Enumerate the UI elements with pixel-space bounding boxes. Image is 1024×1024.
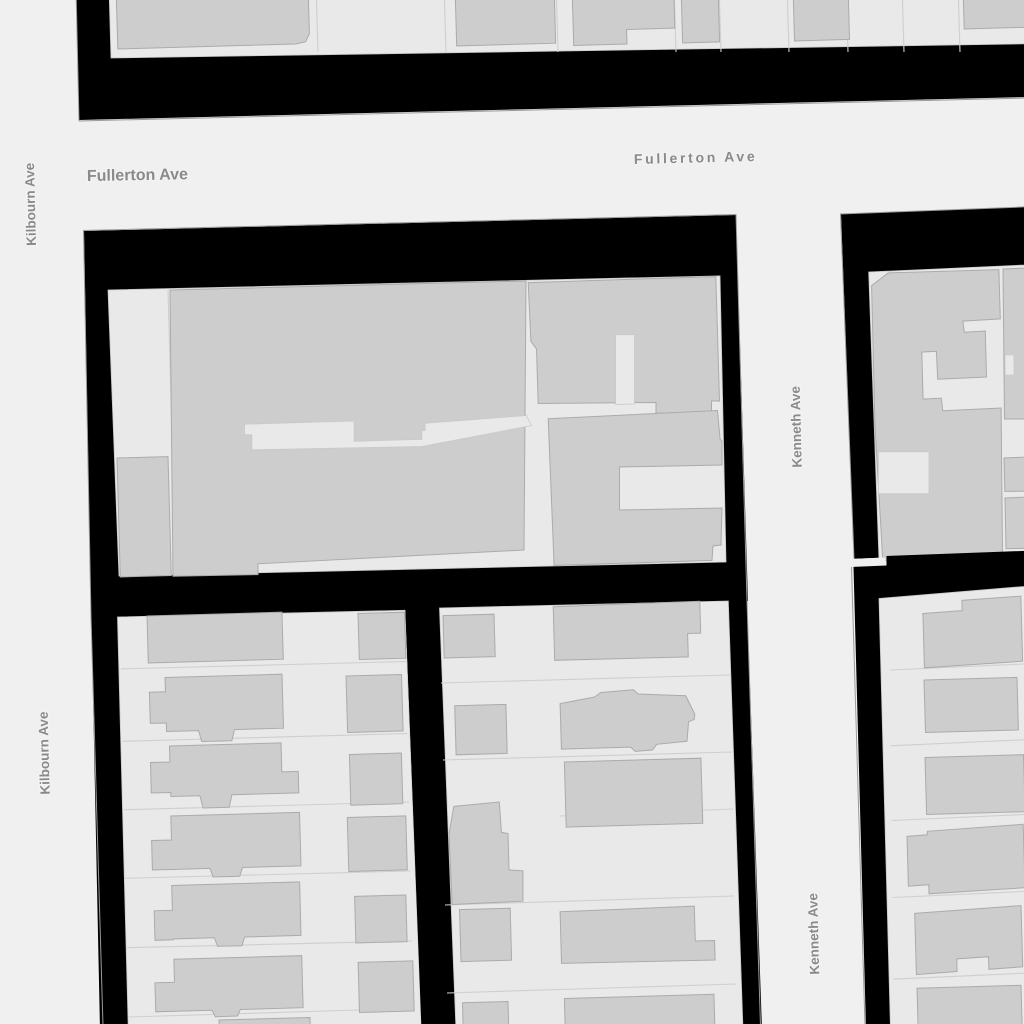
svg-text:Kilbourn Ave: Kilbourn Ave — [36, 711, 53, 795]
svg-text:Kenneth Ave: Kenneth Ave — [805, 892, 822, 974]
svg-text:Fullerton Ave: Fullerton Ave — [87, 166, 188, 185]
svg-text:Kenneth Ave: Kenneth Ave — [788, 385, 805, 467]
svg-text:Fullerton Ave: Fullerton Ave — [634, 148, 758, 167]
svg-text:Kilbourn Ave: Kilbourn Ave — [22, 162, 39, 246]
